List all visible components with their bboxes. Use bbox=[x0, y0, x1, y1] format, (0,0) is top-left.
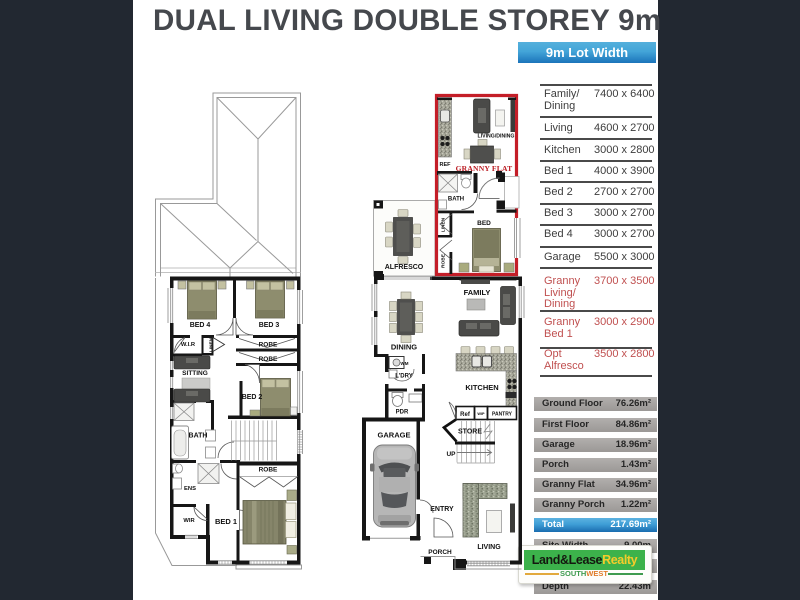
svg-text:LINEN: LINEN bbox=[209, 337, 215, 352]
svg-text:PDR: PDR bbox=[396, 410, 409, 416]
svg-text:STORE: STORE bbox=[458, 429, 482, 436]
svg-text:BED: BED bbox=[477, 220, 491, 227]
svg-text:LIVING: LIVING bbox=[477, 544, 501, 551]
svg-text:DINING: DINING bbox=[391, 343, 417, 352]
svg-text:FAMILY: FAMILY bbox=[464, 288, 491, 297]
svg-text:ROBE: ROBE bbox=[259, 467, 278, 474]
svg-text:REF: REF bbox=[440, 162, 452, 168]
svg-text:BED 4: BED 4 bbox=[190, 322, 211, 329]
svg-text:BED 1: BED 1 bbox=[215, 517, 237, 526]
svg-text:ROBE: ROBE bbox=[259, 342, 278, 349]
svg-text:ALFRESCO: ALFRESCO bbox=[385, 264, 424, 271]
svg-text:KITCHEN: KITCHEN bbox=[465, 383, 498, 392]
svg-text:Ref: Ref bbox=[460, 412, 471, 418]
svg-text:PANTRY: PANTRY bbox=[492, 412, 513, 418]
svg-text:WIP: WIP bbox=[477, 412, 485, 416]
svg-text:L'DRY: L'DRY bbox=[395, 374, 413, 380]
svg-text:WIR: WIR bbox=[183, 518, 195, 524]
svg-text:WM: WM bbox=[401, 361, 409, 366]
svg-text:LIVING/DINING: LIVING/DINING bbox=[478, 134, 515, 140]
svg-text:BATH: BATH bbox=[189, 433, 208, 440]
svg-text:GARAGE: GARAGE bbox=[378, 431, 411, 440]
svg-text:PORCH: PORCH bbox=[428, 549, 452, 556]
svg-text:BED 3: BED 3 bbox=[259, 322, 280, 329]
svg-text:ENTRY: ENTRY bbox=[430, 506, 454, 513]
svg-text:ROBE: ROBE bbox=[441, 253, 447, 268]
svg-text:W.I.R: W.I.R bbox=[181, 342, 196, 348]
svg-text:ENS: ENS bbox=[184, 486, 196, 492]
svg-text:UP: UP bbox=[446, 451, 456, 458]
svg-text:SITTING: SITTING bbox=[182, 370, 208, 377]
svg-text:BATH: BATH bbox=[448, 197, 464, 203]
svg-text:BED 2: BED 2 bbox=[242, 394, 263, 401]
svg-text:ROBE: ROBE bbox=[259, 356, 278, 363]
